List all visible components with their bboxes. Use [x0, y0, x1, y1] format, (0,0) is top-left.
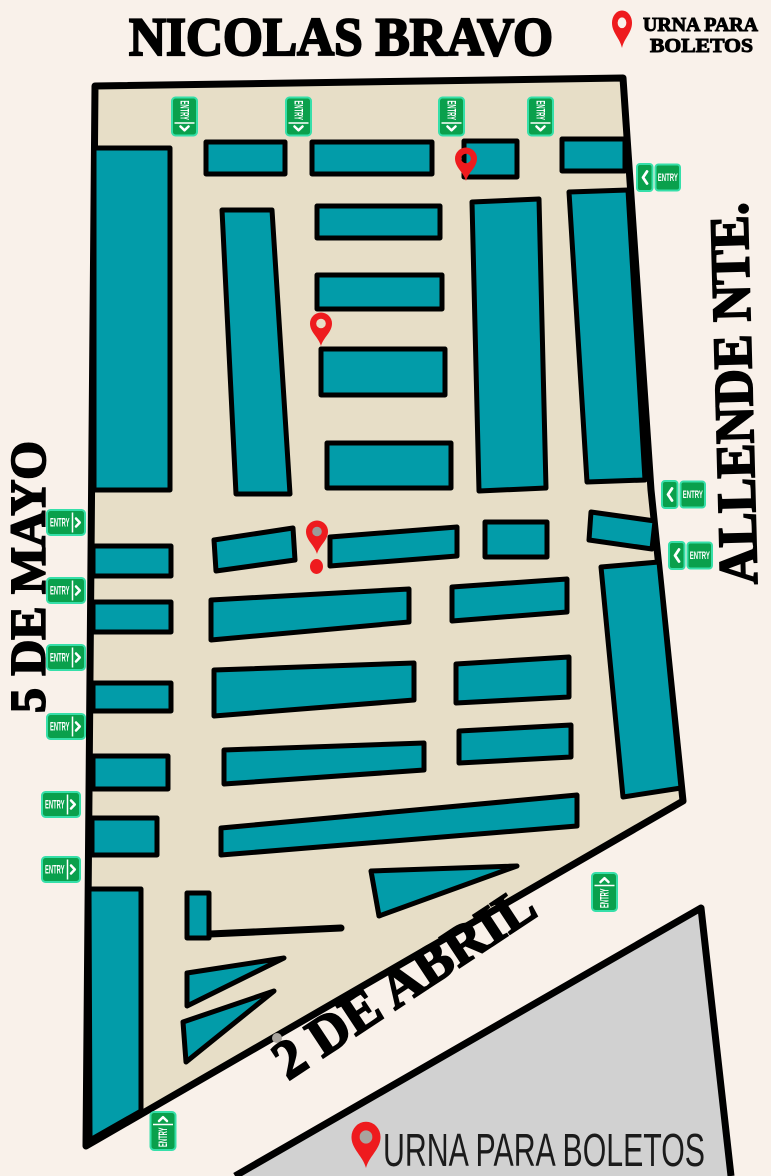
svg-text:URNA PARA: URNA PARA [643, 14, 759, 36]
svg-text:NICOLAS BRAVO: NICOLAS BRAVO [129, 7, 553, 67]
svg-text:5 DE MAYO: 5 DE MAYO [0, 441, 56, 713]
svg-text:BOLETOS: BOLETOS [650, 35, 753, 57]
svg-text:ALLENDE NTE.: ALLENDE NTE. [698, 202, 769, 585]
svg-text:URNA PARA BOLETOS: URNA PARA BOLETOS [383, 1124, 705, 1176]
